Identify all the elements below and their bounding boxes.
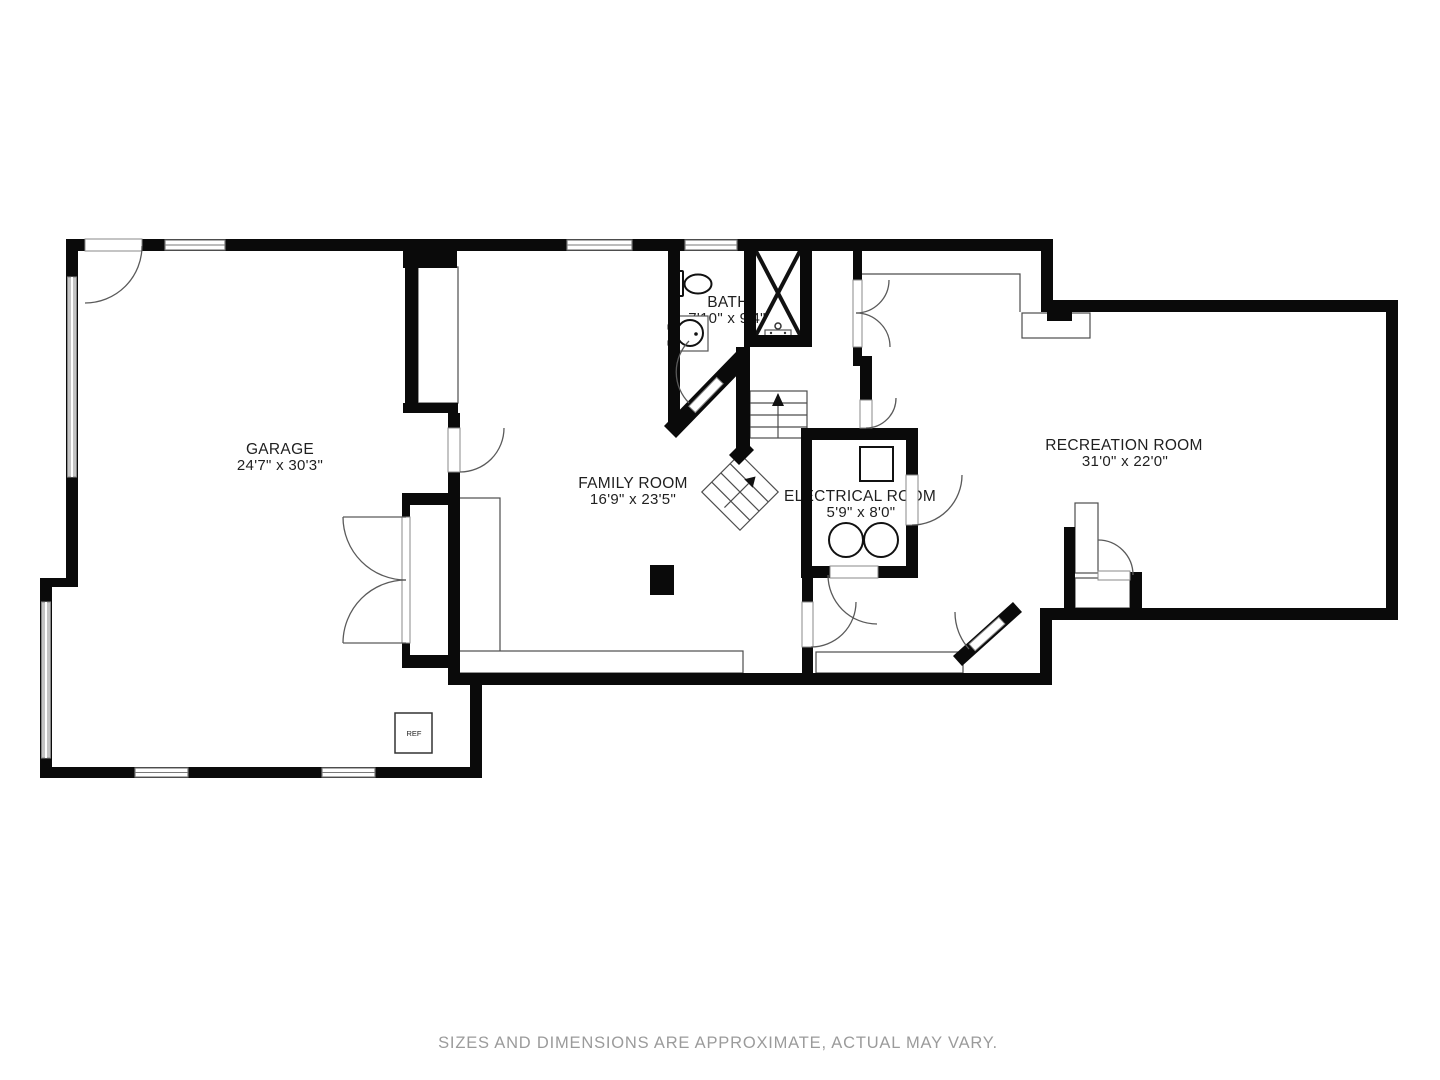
- recreation-closet-box: [1075, 578, 1130, 608]
- wall-bath-left: [668, 251, 680, 430]
- wall-stairs-left: [736, 347, 750, 448]
- door-electrical-bottom-leaf: [830, 566, 878, 578]
- refrigerator: REF: [395, 713, 432, 753]
- door-landing-rec-leaf: [860, 400, 872, 428]
- family-room-label: FAMILY ROOM: [578, 475, 688, 492]
- wall-family-bottom: [448, 673, 1052, 685]
- door-rec-closet-leaf: [1098, 571, 1130, 580]
- family-room-dimensions: 16'9" x 23'5": [590, 491, 676, 508]
- family-room-builtin-lower: [458, 498, 500, 652]
- wall-electrical-left: [801, 428, 812, 578]
- furnace-icon: [860, 447, 893, 481]
- wall-landing-step: [853, 356, 872, 366]
- wall-bottom: [40, 767, 482, 778]
- sink-basin-icon: [677, 320, 703, 346]
- wall-garage-family-step: [403, 403, 458, 413]
- wall-right: [1386, 300, 1398, 620]
- hallway-ledge: [816, 652, 963, 673]
- toilet-bowl-icon: [685, 275, 712, 294]
- wall-alcove-cap: [1047, 312, 1072, 321]
- recreation-room-label: RECREATION ROOM: [1045, 437, 1203, 454]
- wall-extension-right: [470, 678, 482, 778]
- sink-drain-icon: [694, 332, 698, 336]
- family-room-ledge: [458, 651, 743, 673]
- wall-recreation-closet-left: [1064, 527, 1075, 610]
- wall-garage-family-block: [403, 239, 457, 268]
- family-room-builtin-upper: [418, 267, 458, 403]
- tank-left-icon: [829, 523, 863, 557]
- floor-plan-page: BATH 7'10" x 9'4" ELECTRICAL ROOM 5'9" x…: [0, 0, 1440, 1080]
- background: [0, 0, 1440, 1080]
- garage-dimensions: 24'7" x 30'3": [237, 457, 323, 474]
- shower-valve-icon: [775, 323, 781, 329]
- wall-recreation-bottom: [1052, 608, 1398, 620]
- garage-label: GARAGE: [246, 441, 314, 458]
- stairs-upper-flight: [750, 391, 807, 438]
- wall-recreation-top: [1041, 300, 1398, 312]
- wall-left-step: [40, 578, 66, 587]
- refrigerator-label: REF: [407, 729, 422, 738]
- door-hallway-leaf: [802, 602, 813, 647]
- disclaimer-text: SIZES AND DIMENSIONS ARE APPROXIMATE, AC…: [438, 1034, 998, 1052]
- door-garage-entry-leaf: [85, 239, 142, 251]
- wall-shower-right: [800, 251, 812, 347]
- tank-right-icon: [864, 523, 898, 557]
- recreation-chimney: [1075, 503, 1098, 573]
- wall-shower-bottom: [744, 335, 812, 347]
- wall-recreation-closet-right: [1130, 572, 1142, 610]
- wall-electrical-top: [801, 428, 917, 440]
- floor-plan-drawing: BATH 7'10" x 9'4" ELECTRICAL ROOM 5'9" x…: [0, 0, 1440, 1080]
- wall-garage-family-upper: [405, 268, 418, 413]
- wall-closet-top: [402, 493, 453, 505]
- column: [650, 565, 674, 595]
- electrical-room-dimensions: 5'9" x 8'0": [827, 504, 896, 521]
- door-garage-family-leaf: [448, 428, 460, 472]
- wall-closet-bottom: [402, 655, 460, 668]
- bath-label: BATH: [707, 294, 748, 311]
- door-electrical-right-leaf: [906, 475, 918, 525]
- wall-bath-shower-divider: [744, 251, 756, 347]
- recreation-room-dimensions: 31'0" x 22'0": [1082, 453, 1168, 470]
